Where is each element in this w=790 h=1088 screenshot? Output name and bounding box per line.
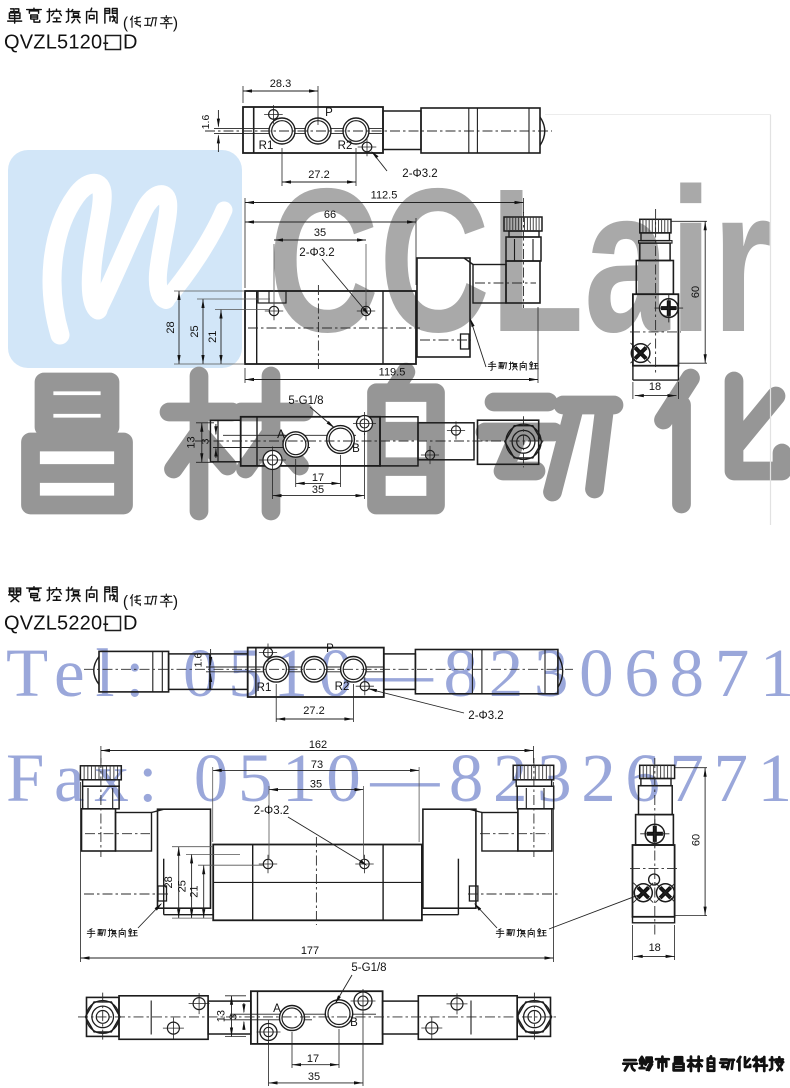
svg-text:17: 17: [307, 1053, 319, 1065]
svg-text:2-Φ3.2: 2-Φ3.2: [402, 168, 437, 180]
svg-text:(: (: [123, 15, 129, 32]
svg-text:162: 162: [309, 739, 327, 751]
svg-text:119.5: 119.5: [379, 367, 406, 379]
svg-text:R1: R1: [259, 140, 274, 152]
svg-text:): ): [173, 15, 178, 32]
svg-text:60: 60: [690, 286, 702, 298]
svg-text:A: A: [273, 1003, 281, 1015]
svg-text:R2: R2: [338, 140, 353, 152]
svg-text:R2: R2: [335, 681, 350, 693]
svg-text:21: 21: [207, 331, 219, 343]
svg-text:QVZL5220-: QVZL5220-: [4, 613, 109, 635]
svg-text:Tel: 0510—82306871: Tel: 0510—82306871: [6, 635, 790, 711]
svg-text:3: 3: [200, 438, 212, 444]
svg-text:177: 177: [301, 945, 319, 957]
svg-text:13: 13: [216, 1010, 228, 1022]
svg-text:35: 35: [312, 484, 324, 496]
svg-text:18: 18: [649, 942, 661, 954]
svg-text:5-G1/8: 5-G1/8: [288, 395, 323, 407]
svg-text:2-Φ3.2: 2-Φ3.2: [254, 805, 289, 817]
svg-text:B: B: [350, 1017, 358, 1029]
svg-text:2-Φ3.2: 2-Φ3.2: [299, 247, 334, 259]
svg-text:35: 35: [314, 227, 326, 239]
svg-text:(: (: [123, 594, 129, 611]
svg-text:17: 17: [312, 472, 324, 484]
svg-text:66: 66: [324, 209, 336, 221]
svg-text:60: 60: [691, 834, 703, 846]
svg-text:35: 35: [310, 779, 322, 791]
svg-text:28: 28: [163, 876, 175, 888]
svg-text:18: 18: [649, 381, 661, 393]
svg-text:25: 25: [176, 880, 188, 892]
svg-text:D: D: [123, 613, 137, 635]
svg-text:13: 13: [186, 436, 198, 448]
svg-text:B: B: [352, 443, 360, 455]
svg-text:P: P: [325, 107, 333, 119]
svg-text:28: 28: [165, 321, 177, 333]
svg-text:1.6: 1.6: [200, 115, 212, 130]
svg-text:73: 73: [311, 759, 323, 771]
svg-text:112.5: 112.5: [371, 190, 398, 202]
svg-text:27.2: 27.2: [308, 169, 329, 181]
svg-text:27.2: 27.2: [303, 705, 324, 717]
svg-text:): ): [173, 594, 178, 611]
svg-text:25: 25: [189, 325, 201, 337]
svg-text:21: 21: [188, 886, 200, 898]
svg-text:3: 3: [228, 1014, 240, 1020]
svg-text:28.3: 28.3: [270, 78, 291, 90]
svg-text:2-Φ3.2: 2-Φ3.2: [468, 710, 503, 722]
svg-text:QVZL5120-: QVZL5120-: [4, 32, 109, 54]
svg-text:1.6: 1.6: [193, 653, 205, 668]
svg-text:P: P: [326, 643, 334, 655]
svg-text:A: A: [277, 429, 285, 441]
svg-text:5-G1/8: 5-G1/8: [351, 962, 386, 974]
svg-text:R1: R1: [257, 682, 272, 694]
svg-text:D: D: [123, 32, 137, 54]
svg-text:35: 35: [308, 1071, 320, 1083]
